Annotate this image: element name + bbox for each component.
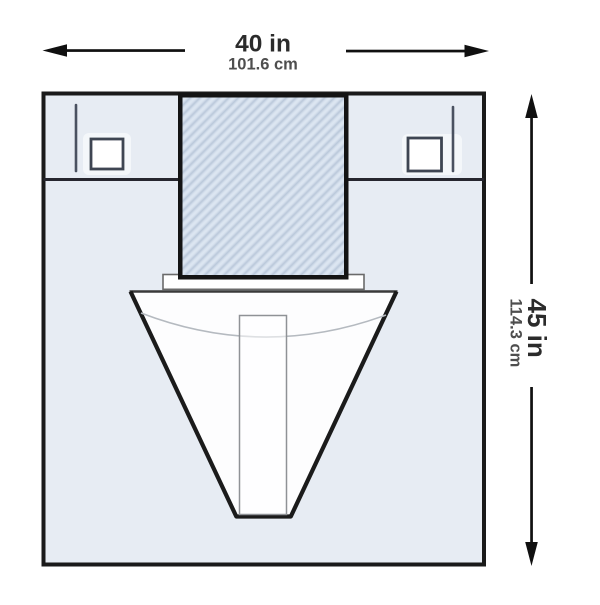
- svg-text:45 in: 45 in: [522, 299, 552, 358]
- svg-text:101.6 cm: 101.6 cm: [228, 56, 298, 74]
- svg-text:40 in: 40 in: [235, 31, 291, 58]
- svg-text:114.3 cm: 114.3 cm: [507, 299, 525, 368]
